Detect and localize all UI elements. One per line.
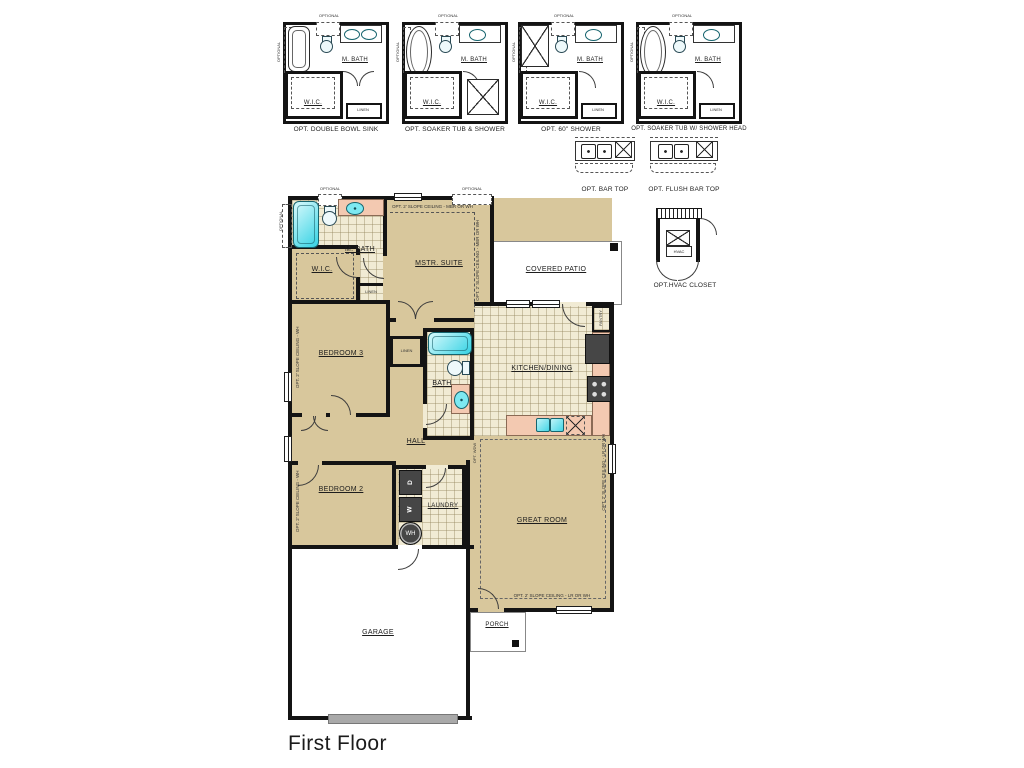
flush-bar-top-option: OPT. FLUSH BAR TOP [650, 137, 720, 197]
dishwasher-icon [696, 141, 713, 158]
room-label-wic: W.I.C. [525, 100, 571, 106]
door-arc [678, 260, 699, 281]
hvac-closet-option: HVAC OPT.HVAC CLOSET [648, 206, 722, 292]
room-label-mstr-suite: MSTR. SUITE [404, 260, 474, 267]
wic-room: W.I.C. [638, 71, 696, 119]
room-label-pantry: PANTRY [599, 303, 603, 333]
optional-label: OPTIONAL [662, 14, 702, 18]
vanity [459, 25, 501, 43]
dishwasher-icon [615, 141, 632, 158]
bathtub-icon [428, 332, 472, 355]
slope-note: OPT. 2' SLOPE CEILING - WH [296, 311, 301, 403]
room-label-wic: W.I.C. [409, 100, 455, 106]
wall [360, 283, 383, 286]
water-heater: WH [399, 522, 422, 545]
option-drawing: M. BATH W.I.C. LINEN [636, 22, 742, 124]
bath-option-card-double-bowl: OPTIONAL OPTIONAL M. BATH W.I.C. LINEN O… [283, 14, 391, 146]
option-caption: OPT. SOAKER TUB W/ SHOWER HEAD [624, 126, 754, 132]
room-label-linen: LINEN [393, 349, 420, 353]
option-caption: OPT. BAR TOP [571, 186, 639, 193]
window [608, 444, 616, 474]
toilet-icon [447, 360, 463, 376]
room-label-m-bath: M. BATH [449, 57, 499, 63]
optional-shower-icon [316, 22, 340, 36]
vanity [575, 25, 617, 43]
optional-label: OPTIONAL [277, 34, 281, 70]
room-label-bath: BATH [424, 380, 460, 387]
room-label-great-room: GREAT ROOM [502, 517, 582, 524]
stove-icon [587, 376, 611, 402]
optional-label: OPTIONAL [428, 14, 468, 18]
opt-wdw-note: OPT. WDW [473, 437, 477, 469]
door-arc [697, 71, 714, 88]
dishwasher-icon [566, 416, 585, 435]
shower-icon [467, 79, 499, 115]
counter-dash [575, 137, 635, 138]
optional-label: OPTIONAL [310, 187, 350, 191]
wic-room: W.I.C. [404, 71, 462, 119]
counter [575, 141, 635, 161]
door-arc [359, 71, 374, 86]
hvac-unit-label-box: HVAC [666, 246, 692, 257]
room-label-m-bath: M. BATH [565, 57, 615, 63]
room-label-linen: LINEN [583, 108, 613, 112]
linen-closet: LINEN [390, 336, 423, 367]
linen-closet: LINEN [581, 103, 617, 119]
linen-closet: LINEN [699, 103, 735, 119]
wic-room: W.I.C. [520, 71, 578, 119]
room-label-wic: W.I.C. [643, 100, 689, 106]
room-label-laundry: LAUNDRY [418, 503, 468, 509]
bar-top-option: OPT. BAR TOP [575, 137, 637, 197]
door-arc [579, 71, 596, 88]
door-opening [466, 440, 470, 460]
bar-counter [575, 163, 633, 173]
window [284, 436, 292, 462]
master-bathtub-icon [293, 201, 319, 248]
counter [650, 141, 718, 161]
wall [656, 218, 660, 262]
door-arc [656, 260, 677, 281]
window [556, 606, 592, 614]
room-label-covered-patio: COVERED PATIO [521, 266, 591, 273]
room-label-bedroom2: BEDROOM 2 [306, 486, 376, 493]
dryer-label: D [407, 480, 414, 485]
wic-room: W.I.C. [285, 71, 343, 119]
washer: W [399, 497, 422, 522]
slope-note: OPT. 2' SLOPE CEILING - MBR OR WH [476, 210, 481, 310]
room-label-kitchen-dining: KITCHEN/DINING [502, 365, 582, 372]
window [394, 193, 422, 201]
optional-label: OPTIONAL [450, 187, 494, 191]
counter-dash [650, 137, 718, 138]
optional-label: OPTIONAL [279, 203, 283, 239]
wall [288, 300, 390, 304]
wall [490, 245, 494, 306]
optional-shower-icon [435, 22, 459, 36]
option-drawing: M. BATH W.I.C. LINEN [518, 22, 624, 124]
toilet-icon [673, 40, 686, 53]
room-label-porch: PORCH [480, 622, 514, 628]
floor-plan-page: OPTIONAL OPTIONAL M. BATH W.I.C. LINEN O… [0, 0, 1024, 768]
option-caption: OPT. 60" SHOWER [508, 126, 634, 133]
slope-note: OPT. 2' SLOPE CEILING - WH [296, 455, 301, 547]
bath-option-card-60-shower: OPTIONAL OPTIONAL M. BATH W.I.C. LINEN O… [518, 14, 626, 146]
room-label-m-bath: M. BATH [683, 57, 733, 63]
sink-icon [658, 144, 673, 159]
room-label-wic: W.I.C. [290, 100, 336, 106]
optional-label: OPTIONAL [630, 34, 634, 70]
sink-icon [361, 29, 377, 40]
dryer: D [399, 470, 422, 495]
porch-post [512, 640, 519, 647]
linen-closet: LINEN [346, 103, 382, 119]
shower-icon [521, 25, 549, 67]
bath-option-card-soaker-showerhead: OPTIONAL OPTIONAL M. BATH W.I.C. LINEN O… [636, 14, 744, 146]
sink-icon [597, 144, 612, 159]
room-label-m-bath: M. BATH [330, 246, 390, 253]
optional-label: OPTIONAL [396, 34, 400, 70]
toilet-icon [462, 361, 470, 375]
slope-note: OPT. 2' SLOPE CEILING - MBR OR WH [392, 205, 474, 210]
room-label-m-bath: M. BATH [330, 57, 380, 63]
vanity [340, 25, 382, 43]
toilet-icon [322, 211, 337, 226]
sink-icon [344, 29, 360, 40]
window [284, 372, 292, 402]
option-caption: OPT. SOAKER TUB & SHOWER [392, 126, 518, 133]
toilet-icon [439, 40, 452, 53]
sink-icon [454, 391, 469, 409]
room-label-wic: W.I.C. [300, 266, 344, 273]
option-drawing: M. BATH W.I.C. LINEN [283, 22, 389, 124]
toilet-icon [555, 40, 568, 53]
page-title: First Floor [288, 732, 387, 756]
sink-icon [550, 418, 564, 432]
option-caption: OPT. FLUSH BAR TOP [648, 186, 720, 193]
hvac-unit-label: HVAC [674, 249, 685, 254]
bathtub-icon [288, 26, 310, 72]
sink-icon [469, 29, 486, 41]
optional-label: OPTIONAL [544, 14, 584, 18]
vanity [693, 25, 735, 43]
sink-icon [674, 144, 689, 159]
water-heater-label: WH [406, 531, 416, 537]
room-label-linen: LINEN [359, 290, 383, 294]
optional-strip [282, 204, 292, 248]
patio-post [610, 243, 618, 251]
room-label-garage: GARAGE [343, 629, 413, 636]
slope-note: OPT. 2' SLOPE CEILING - LR OR WH [602, 422, 607, 522]
option-caption: OPT. DOUBLE BOWL SINK [273, 126, 399, 133]
refrigerator-icon [585, 334, 610, 364]
bath-option-card-soaker-shower: OPTIONAL OPTIONAL M. BATH W.I.C. OPT. SO… [402, 14, 510, 146]
sink-icon [581, 144, 596, 159]
room-label-bedroom3: BEDROOM 3 [306, 350, 376, 357]
wall [288, 545, 474, 549]
sink-icon [536, 418, 550, 432]
wall [288, 549, 292, 720]
door-arc [700, 218, 717, 235]
hvac-unit-icon [666, 230, 690, 246]
sink-icon [585, 29, 602, 41]
room-label-linen: LINEN [701, 108, 731, 112]
room-label-hall: HALL [398, 438, 434, 445]
garage-door [328, 714, 458, 724]
sink-icon [703, 29, 720, 41]
optional-label: OPTIONAL [309, 14, 349, 18]
room-label-linen: LINEN [348, 108, 378, 112]
patio-slider-door [532, 300, 560, 308]
option-caption: OPT.HVAC CLOSET [648, 282, 722, 289]
covered-patio-area [492, 241, 622, 305]
slope-note: OPT. 2' SLOPE CEILING - LR OR WH [497, 594, 607, 599]
washer-label: W [407, 506, 414, 512]
door-arc [343, 71, 358, 86]
ceiling-dash [390, 212, 475, 213]
bar-counter [650, 163, 716, 173]
optional-label: OPTIONAL [512, 34, 516, 70]
toilet-icon [320, 40, 333, 53]
optional-shower-icon [551, 22, 575, 36]
window [506, 300, 530, 308]
optional-shower-icon [669, 22, 693, 36]
wall [392, 461, 396, 549]
wall [466, 549, 470, 720]
sink-icon [346, 202, 364, 215]
option-drawing: M. BATH W.I.C. [402, 22, 508, 124]
